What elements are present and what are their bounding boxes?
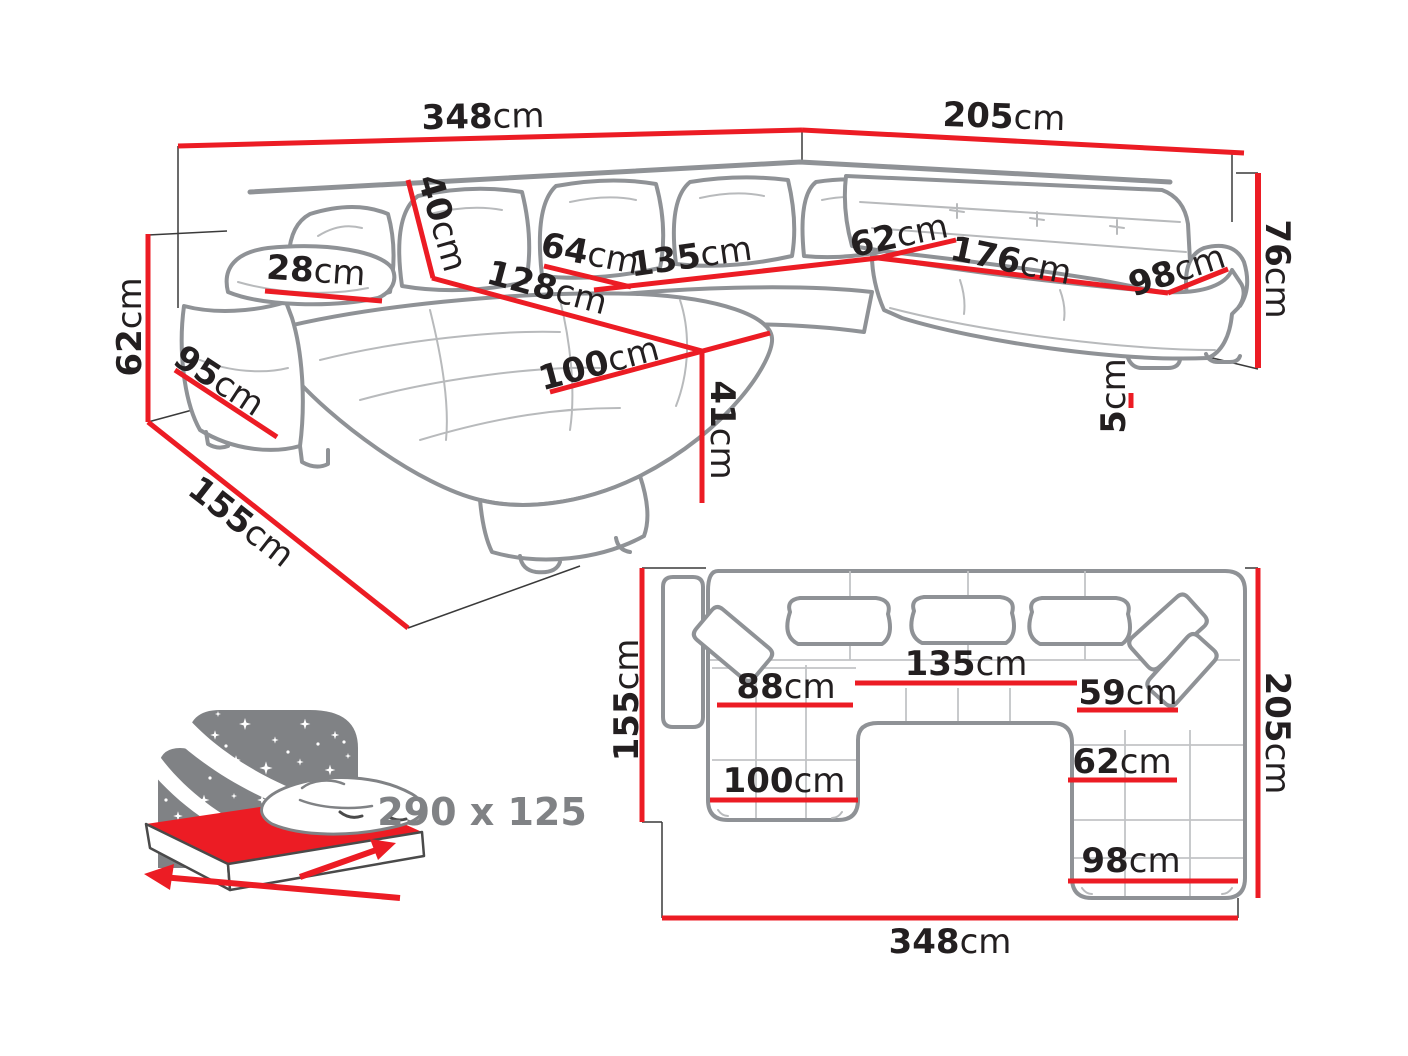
dim-leg-height: 5cm <box>1094 358 1134 434</box>
dim-plan-chaise-width: 100cm <box>723 761 846 801</box>
sofa-perspective-drawing <box>182 162 1247 572</box>
dim-plan-right-depth: 205cm <box>1257 672 1297 795</box>
dim-plan-end-seat: 98cm <box>1081 841 1180 881</box>
plan-armrest <box>663 577 703 727</box>
chaise <box>265 293 772 505</box>
dim-seat-height: 41cm <box>702 380 742 479</box>
diagram-canvas: 348cm 205cm 76cm 62cm 95cm 155cm 28cm 40… <box>0 0 1408 1056</box>
dim-plan-left-seat: 88cm <box>736 667 835 707</box>
plan-pillow <box>1029 598 1130 644</box>
dim-plan-right-inner: 62cm <box>1072 742 1171 782</box>
dim-plan-total-width: 348cm <box>889 922 1012 962</box>
dim-left-height: 62cm <box>110 277 150 376</box>
dim-chaise-length: 155cm <box>180 468 301 575</box>
dim-plan-right-seat: 59cm <box>1078 673 1177 713</box>
dim-total-height: 76cm <box>1257 219 1297 318</box>
dim-plan-middle-seat: 135cm <box>905 644 1028 684</box>
sofa-dimensions-diagram: 348cm 205cm 76cm 62cm 95cm 155cm 28cm 40… <box>0 0 1408 1056</box>
dim-right-width: 205cm <box>942 95 1066 139</box>
plan-pillow <box>911 597 1014 643</box>
dim-back-width: 348cm <box>421 96 544 138</box>
sleeping-size-label: 290 x 125 <box>377 790 587 834</box>
sofa-bed-icon: 290 x 125 <box>140 706 587 898</box>
dim-arm-width: 28cm <box>265 248 367 295</box>
plan-pillow <box>787 598 890 644</box>
dim-plan-chaise-depth: 155cm <box>607 639 647 762</box>
